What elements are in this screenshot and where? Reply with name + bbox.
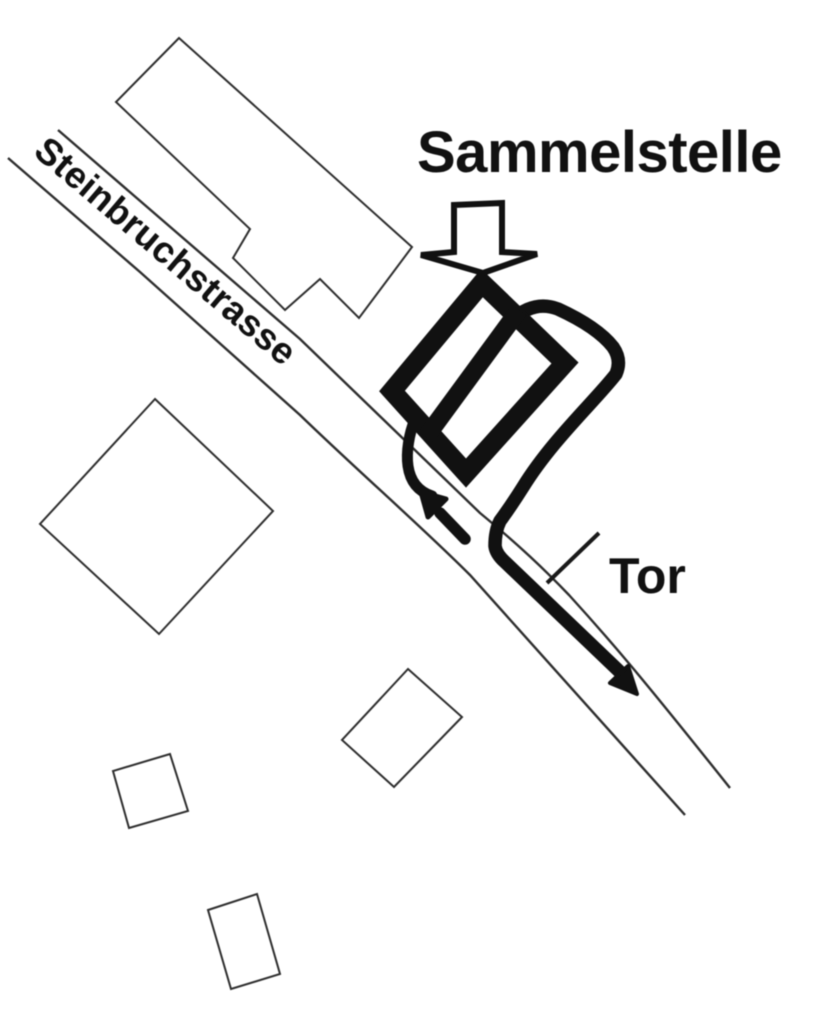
svg-text:Tor: Tor (609, 548, 686, 604)
svg-text:Sammelstelle: Sammelstelle (417, 120, 782, 185)
